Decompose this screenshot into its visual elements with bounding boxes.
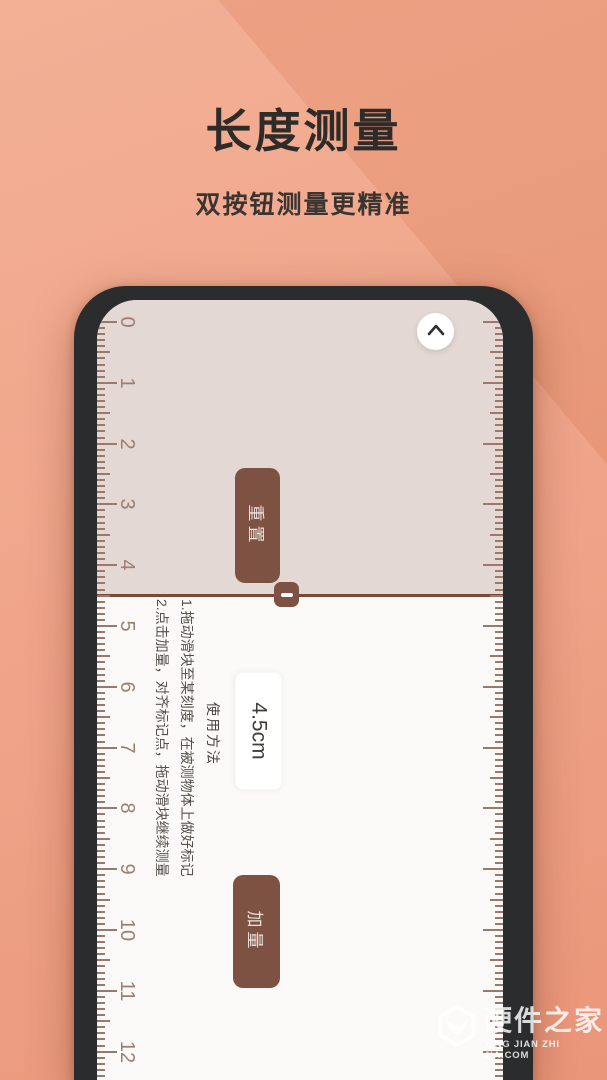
ruler-tick xyxy=(97,880,105,882)
ruler-tick xyxy=(97,935,105,937)
reset-button[interactable]: 重置 xyxy=(235,468,280,583)
ruler-tick xyxy=(495,680,503,682)
ruler-tick xyxy=(97,990,117,992)
ruler-tick xyxy=(97,759,105,761)
ruler-tick xyxy=(495,917,503,919)
ruler-tick xyxy=(97,1075,105,1077)
phone-mockup: 0123456789101112 0123456789101112 重置 4.5… xyxy=(74,286,533,1080)
ruler-tick xyxy=(97,899,110,901)
ruler-tick xyxy=(495,649,503,651)
ruler-tick xyxy=(97,978,105,980)
ruler-tick xyxy=(495,789,503,791)
ruler-tick xyxy=(495,607,503,609)
chevron-up-icon xyxy=(426,323,446,340)
ruler-tick xyxy=(97,619,105,621)
ruler-tick xyxy=(97,947,105,949)
ruler-tick xyxy=(495,996,503,998)
ruler-tick xyxy=(495,668,503,670)
ruler-tick xyxy=(495,631,503,633)
ruler-tick xyxy=(495,643,503,645)
ruler-tick xyxy=(97,1014,105,1016)
watermark-name: 硬件之家 xyxy=(484,1004,607,1038)
ruler-tick xyxy=(97,789,105,791)
slider-handle[interactable] xyxy=(274,582,299,607)
ruler-tick xyxy=(97,771,105,773)
ruler-tick xyxy=(495,965,503,967)
ruler-tick xyxy=(97,1045,105,1047)
ruler-tick xyxy=(97,625,117,627)
ruler-tick xyxy=(495,674,503,676)
ruler-tick xyxy=(97,722,105,724)
page-title: 长度测量 xyxy=(0,95,607,161)
ruler-tick xyxy=(495,844,503,846)
ruler-tick xyxy=(495,734,503,736)
ruler-tick xyxy=(97,783,105,785)
ruler-tick xyxy=(495,947,503,949)
ruler-tick xyxy=(495,832,503,834)
ruler-tick xyxy=(495,759,503,761)
ruler-tick xyxy=(490,899,503,901)
ruler-app-screen: 0123456789101112 0123456789101112 重置 4.5… xyxy=(97,300,503,1080)
ruler-tick xyxy=(97,874,105,876)
ruler-tick xyxy=(495,704,503,706)
ruler-number: 8 xyxy=(107,788,147,828)
ruler-tick xyxy=(495,795,503,797)
usage-instructions: 使用方法 1.拖动滑块至某刻度，在被测物体上做好标记 2.点击加量，对齐标记点，… xyxy=(147,599,225,869)
ruler-tick xyxy=(97,1002,105,1004)
ruler-tick xyxy=(495,728,503,730)
ruler-tick xyxy=(97,710,105,712)
ruler-tick xyxy=(483,868,503,870)
ruler-tick xyxy=(495,722,503,724)
ruler-number: 9 xyxy=(107,849,147,889)
ruler-tick xyxy=(490,777,503,779)
ruler-tick xyxy=(495,850,503,852)
ruler-tick xyxy=(97,613,105,615)
ruler-tick xyxy=(97,1057,105,1059)
ruler-tick xyxy=(495,783,503,785)
ruler-tick xyxy=(495,880,503,882)
ruler-tick xyxy=(495,935,503,937)
ruler-tick xyxy=(495,601,503,603)
ruler-tick xyxy=(495,692,503,694)
ruler-tick xyxy=(495,978,503,980)
ruler-tick xyxy=(97,826,105,828)
ruler-tick xyxy=(97,893,105,895)
ruler-tick xyxy=(97,965,105,967)
ruler-tick xyxy=(495,698,503,700)
ruler-tick xyxy=(97,1038,105,1040)
ruler-tick xyxy=(495,826,503,828)
ruler-tick xyxy=(97,704,105,706)
ruler-tick xyxy=(495,753,503,755)
ruler-tick xyxy=(97,972,105,974)
ruler-tick xyxy=(483,625,503,627)
ruler-tick xyxy=(97,917,105,919)
ruler-tick xyxy=(495,619,503,621)
ruler-tick xyxy=(97,801,105,803)
watermark-text: 硬件之家 YING JIAN ZHI JIA.COM xyxy=(484,1004,607,1061)
ruler-tick xyxy=(490,959,503,961)
ruler-tick xyxy=(97,838,110,840)
ruler-tick xyxy=(97,959,110,961)
ruler-tick xyxy=(495,856,503,858)
ruler-tick xyxy=(97,929,117,931)
ruler-tick xyxy=(495,984,503,986)
watermark-domain: YING JIAN ZHI JIA.COM xyxy=(484,1039,607,1061)
ruler-tick xyxy=(495,874,503,876)
ruler-tick xyxy=(483,807,503,809)
ruler-tick xyxy=(97,637,105,639)
ruler-tick xyxy=(495,941,503,943)
ruler-number: 5 xyxy=(107,606,147,646)
ruler-tick xyxy=(495,813,503,815)
ruler-tick xyxy=(495,893,503,895)
ruler-tick xyxy=(97,844,105,846)
ruler-tick xyxy=(495,613,503,615)
add-measure-button[interactable]: 加量 xyxy=(233,875,280,988)
instructions-step1: 1.拖动滑块至某刻度，在被测物体上做好标记 xyxy=(174,599,200,869)
ruler-tick xyxy=(490,716,503,718)
ruler-tick xyxy=(490,838,503,840)
ruler-tick xyxy=(97,850,105,852)
collapse-button[interactable] xyxy=(417,313,454,350)
ruler-tick xyxy=(97,813,105,815)
ruler-tick xyxy=(97,668,105,670)
ruler-tick xyxy=(97,1063,105,1065)
ruler-number: 11 xyxy=(107,971,147,1011)
ruler-tick xyxy=(495,1069,503,1071)
ruler-tick xyxy=(97,1026,105,1028)
ruler-tick xyxy=(97,741,105,743)
ruler-tick xyxy=(97,747,117,749)
ruler-tick xyxy=(495,923,503,925)
instructions-step2: 2.点击加量，对齐标记点，拖动滑块继续测量 xyxy=(149,599,175,869)
ruler-tick xyxy=(495,972,503,974)
ruler-tick xyxy=(97,953,105,955)
ruler-tick xyxy=(97,832,105,834)
ruler-tick xyxy=(495,820,503,822)
ruler-tick xyxy=(97,607,105,609)
ruler-tick xyxy=(483,990,503,992)
ruler-tick xyxy=(483,747,503,749)
ruler-tick xyxy=(97,886,105,888)
ruler-number: 7 xyxy=(107,728,147,768)
ruler-tick xyxy=(495,765,503,767)
ruler-tick xyxy=(495,862,503,864)
ruler-tick xyxy=(97,680,105,682)
ruler-tick xyxy=(97,856,105,858)
ruler-tick xyxy=(97,1069,105,1071)
watermark: 硬件之家 YING JIAN ZHI JIA.COM xyxy=(435,1004,607,1061)
ruler-tick xyxy=(97,777,110,779)
ruler-tick xyxy=(495,905,503,907)
ruler-tick xyxy=(490,655,503,657)
ruler-tick xyxy=(97,734,105,736)
ruler-tick xyxy=(97,911,105,913)
instructions-heading: 使用方法 xyxy=(200,599,226,869)
ruler-tick xyxy=(97,661,105,663)
ruler-tick xyxy=(97,631,105,633)
ruler-tick xyxy=(97,820,105,822)
ruler-tick xyxy=(97,643,105,645)
ruler-tick xyxy=(97,1008,105,1010)
ruler-tick xyxy=(97,601,105,603)
ruler-tick xyxy=(97,868,117,870)
ruler-tick xyxy=(495,771,503,773)
ruler-tick xyxy=(97,698,105,700)
ruler-tick xyxy=(495,1063,503,1065)
ruler-tick xyxy=(97,716,110,718)
ruler-number: 10 xyxy=(107,910,147,950)
ruler-tick xyxy=(495,1075,503,1077)
promo-screenshot: 长度测量 双按钮测量更精准 0123456789101112 012345678… xyxy=(0,0,607,1080)
ruler-tick xyxy=(495,710,503,712)
ruler-tick xyxy=(97,753,105,755)
ruler-tick xyxy=(97,941,105,943)
ruler-number: 6 xyxy=(107,667,147,707)
ruler-tick xyxy=(483,929,503,931)
ruler-tick xyxy=(495,801,503,803)
ruler-tick xyxy=(97,674,105,676)
ruler-tick xyxy=(483,686,503,688)
ruler-tick xyxy=(97,862,105,864)
ruler-tick xyxy=(97,807,117,809)
ruler-tick xyxy=(97,765,105,767)
ruler-tick xyxy=(495,661,503,663)
ruler-tick xyxy=(97,1051,117,1053)
ruler-tick xyxy=(97,984,105,986)
ruler-tick xyxy=(97,795,105,797)
ruler-tick xyxy=(495,953,503,955)
ruler-tick xyxy=(97,655,110,657)
drag-dash-icon xyxy=(281,593,293,597)
ruler-tick xyxy=(495,637,503,639)
page-subtitle: 双按钮测量更精准 xyxy=(0,185,607,221)
ruler-tick xyxy=(97,923,105,925)
ruler-tick xyxy=(495,911,503,913)
ruler-tick xyxy=(97,996,105,998)
ruler-tick xyxy=(97,905,105,907)
ruler-tick xyxy=(97,1032,105,1034)
ruler-tick xyxy=(495,886,503,888)
measure-line xyxy=(97,594,503,597)
ruler-tick xyxy=(495,741,503,743)
watermark-logo-icon xyxy=(435,1004,479,1053)
hero-header: 长度测量 双按钮测量更精准 xyxy=(0,0,607,221)
ruler-tick xyxy=(97,1020,110,1022)
ruler-tick xyxy=(97,692,105,694)
measurement-value: 4.5cm xyxy=(236,673,282,790)
ruler-tick xyxy=(97,686,117,688)
ruler-tick xyxy=(97,649,105,651)
ruler-number: 12 xyxy=(107,1032,147,1072)
ruler-tick xyxy=(97,728,105,730)
